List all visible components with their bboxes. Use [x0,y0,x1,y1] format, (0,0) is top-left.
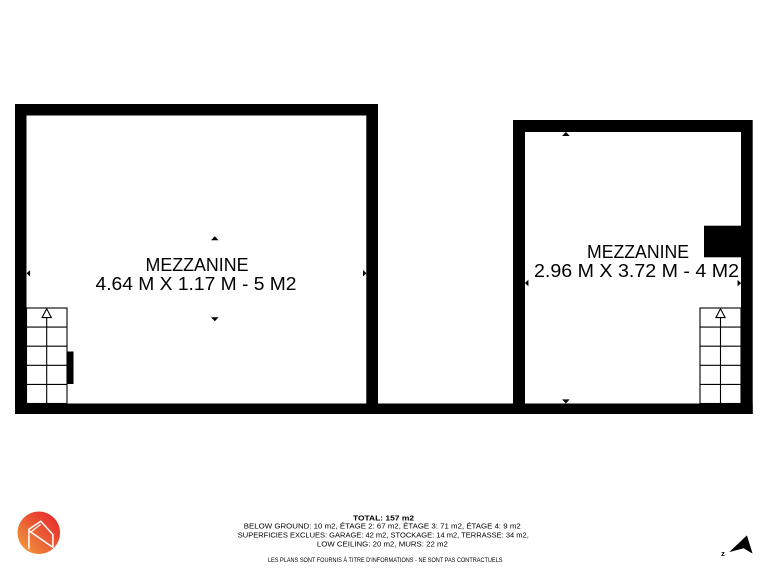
svg-text:LOW CEILING: 20 m2, MURS: 22 m: LOW CEILING: 20 m2, MURS: 22 m2 [317,540,448,549]
svg-text:LES PLANS SONT FOURNIS À TITRE: LES PLANS SONT FOURNIS À TITRE D'INFORMA… [268,555,503,564]
svg-text:SUPERFICIES EXCLUES: GARAGE: 4: SUPERFICIES EXCLUES: GARAGE: 42 m2, STOC… [238,531,529,540]
svg-text:4.64 M X 1.17 M - 5 M2: 4.64 M X 1.17 M - 5 M2 [96,273,297,294]
svg-text:BELOW GROUND: 10 m2, ÉTAGE 2:: BELOW GROUND: 10 m2, ÉTAGE 2: 67 m2, ÉTA… [244,522,521,531]
svg-text:2.96 M X 3.72 M - 4 M2: 2.96 M X 3.72 M - 4 M2 [534,260,739,281]
svg-text:z: z [721,549,725,558]
svg-text:MEZZANINE: MEZZANINE [146,254,249,275]
svg-text:MEZZANINE: MEZZANINE [587,241,689,262]
